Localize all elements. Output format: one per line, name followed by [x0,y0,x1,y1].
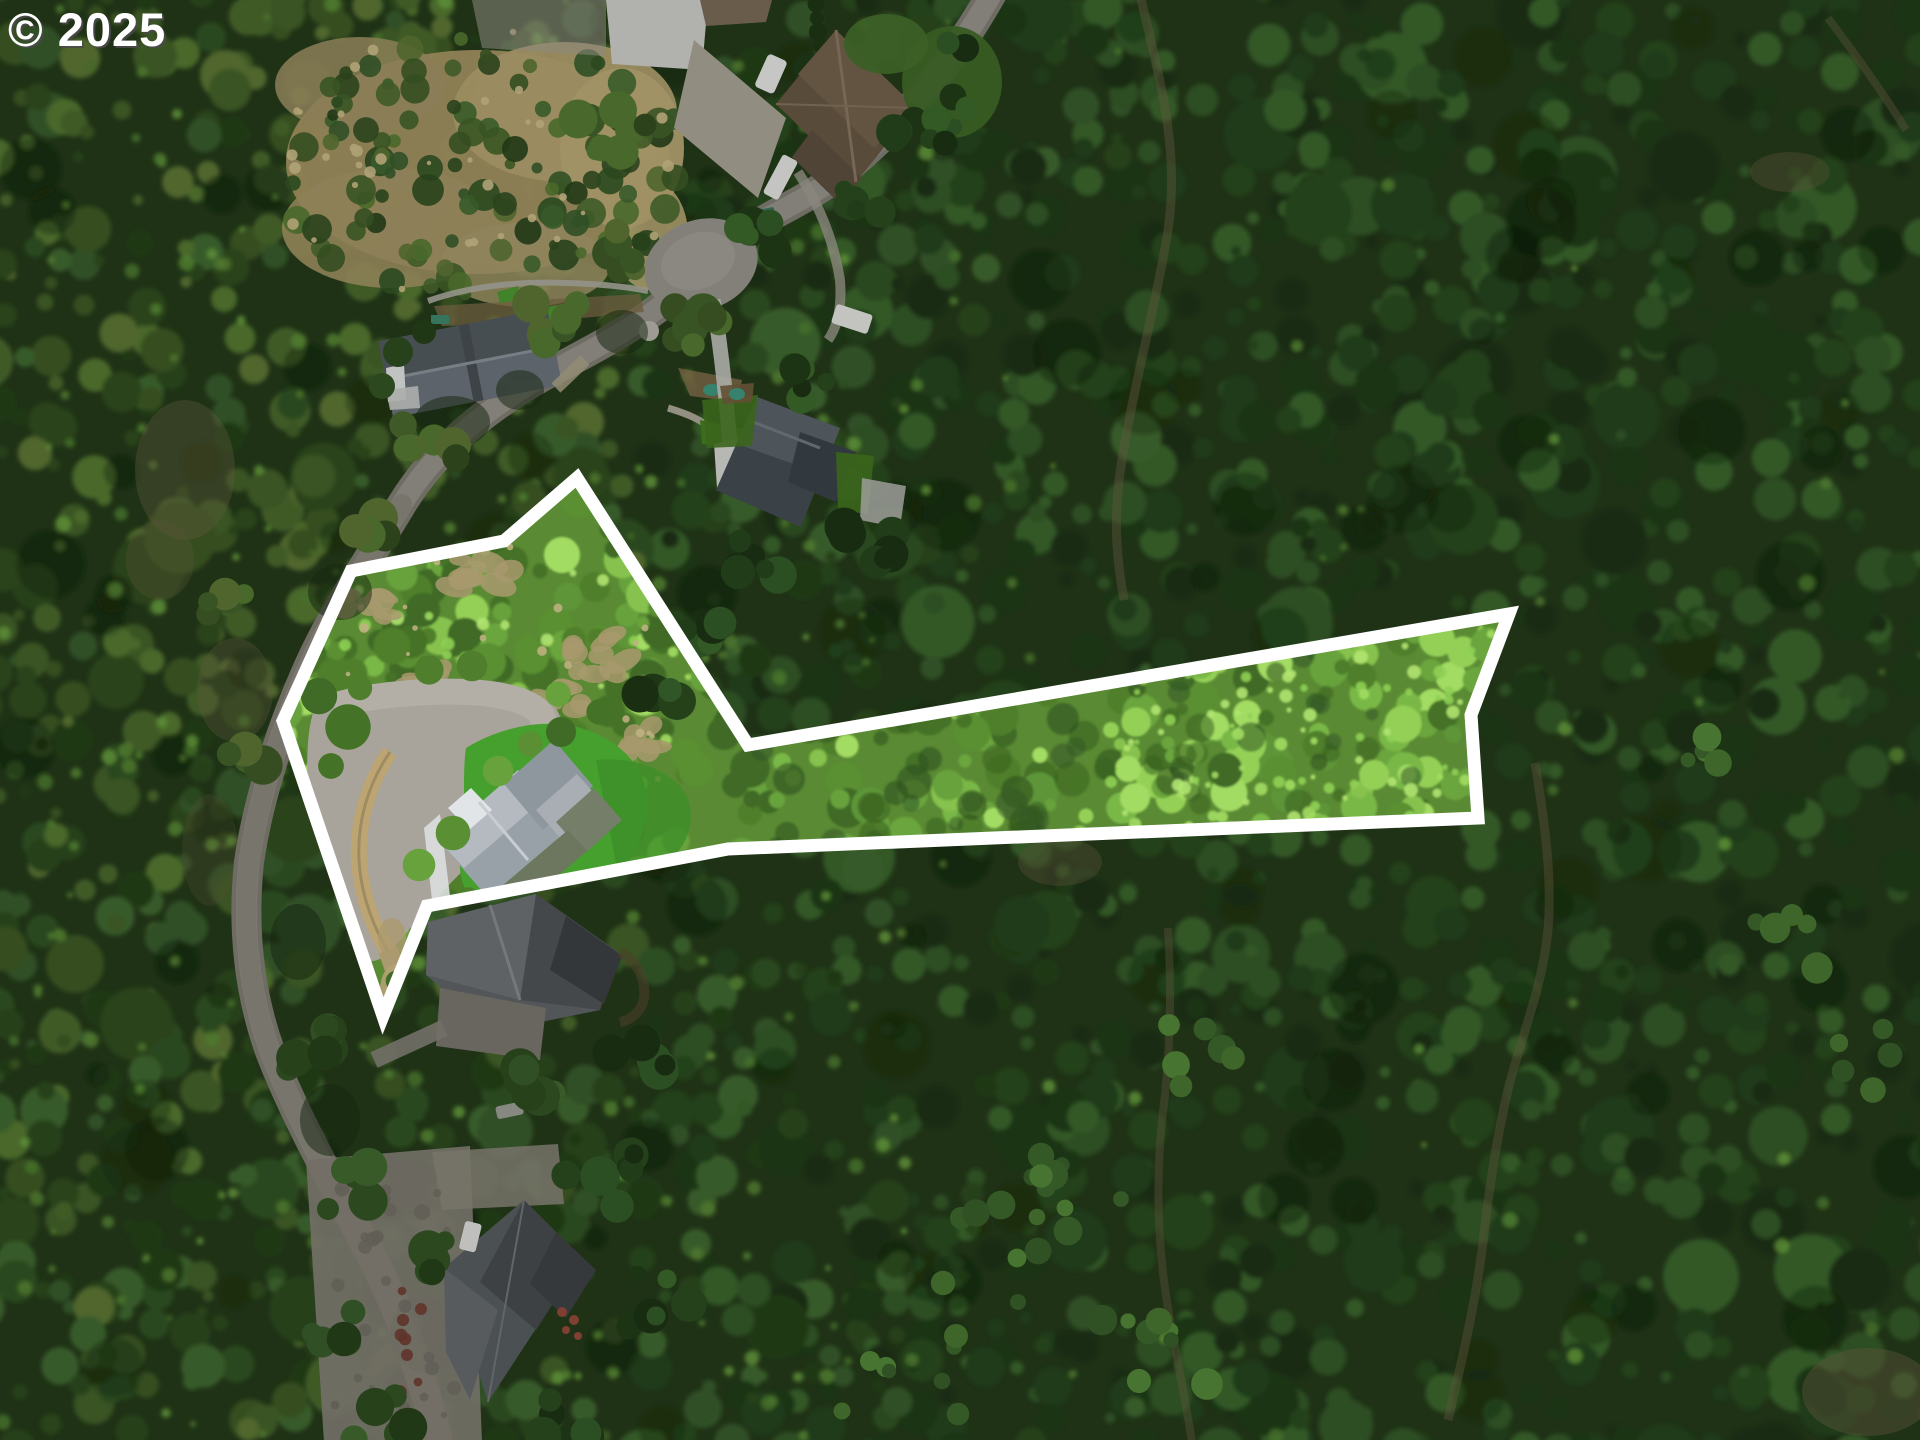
svg-text:© 2025: © 2025 [8,3,166,56]
